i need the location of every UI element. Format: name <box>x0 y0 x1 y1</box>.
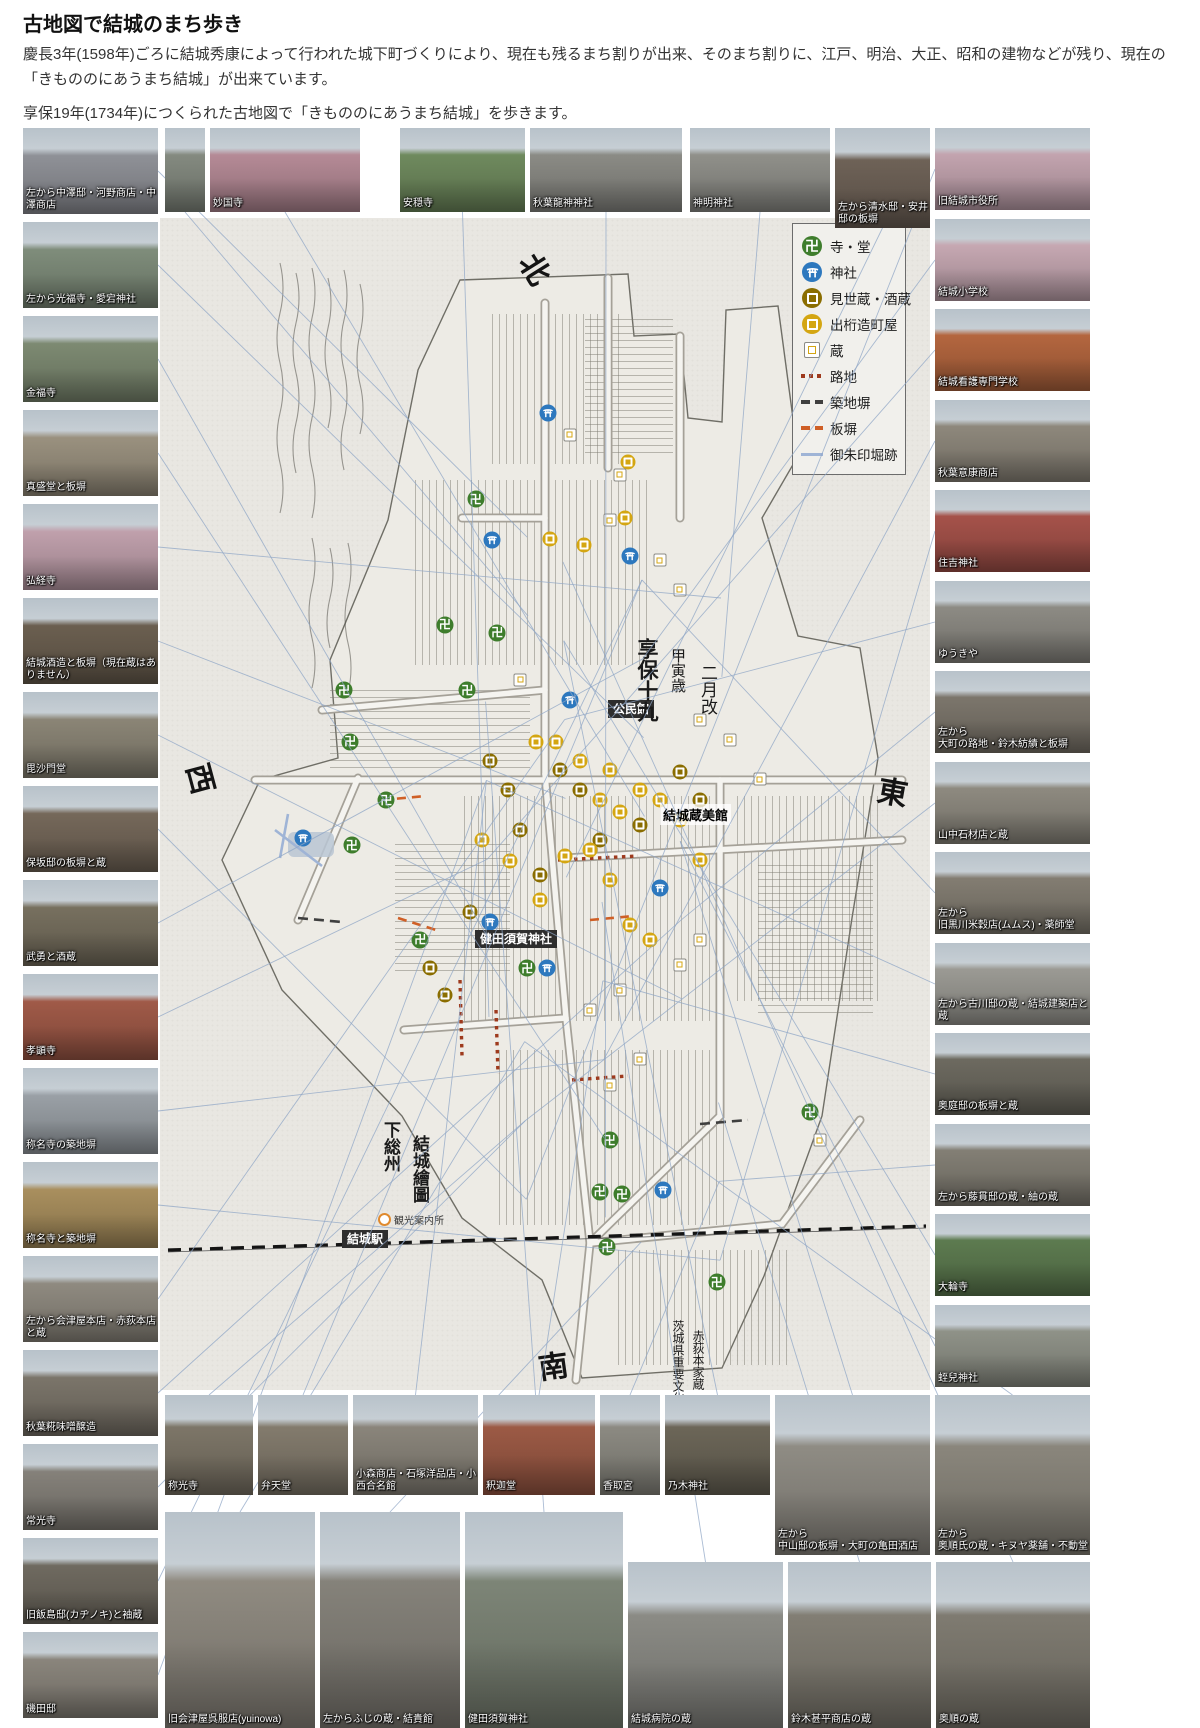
photo-thumbnail: 毘沙門堂 <box>23 692 158 778</box>
photo-caption: 結城病院の蔵 <box>631 1714 781 1726</box>
misegura-marker <box>672 765 687 780</box>
degeta-marker <box>602 873 617 888</box>
photo-thumbnail: 妙国寺 <box>210 128 360 212</box>
misegura-marker <box>513 822 528 837</box>
legend-label: 出桁造町屋 <box>830 314 898 334</box>
kura-marker <box>603 514 616 527</box>
photo-caption: 住吉神社 <box>938 558 1088 570</box>
photo-caption: 武勇と酒蔵 <box>26 952 156 964</box>
misegura-marker <box>501 782 516 797</box>
shrine-marker <box>621 547 638 564</box>
degeta-marker <box>528 734 543 749</box>
degeta-marker <box>692 853 707 868</box>
photo-caption: 香取宮 <box>603 1481 658 1493</box>
misegura-marker <box>533 868 548 883</box>
old-map-panel: 卍寺・堂神社見世蔵・酒蔵出桁造町屋蔵路地築地塀板塀御朱印堀跡 公民館 結城蔵美館… <box>160 218 930 1390</box>
misegura-marker <box>632 818 647 833</box>
photo-thumbnail: 磯田邸 <box>23 1632 158 1718</box>
photo-thumbnail: 大輪寺 <box>935 1214 1090 1296</box>
photo-thumbnail: 旧会津屋呉服店(yuinowa) <box>165 1512 315 1728</box>
misegura-marker <box>463 904 478 919</box>
photo-caption: 健田須賀神社 <box>468 1714 621 1726</box>
photo-thumbnail: 称名寺と築地塀 <box>23 1162 158 1248</box>
photo-thumbnail: 山中石材店と蔵 <box>935 762 1090 844</box>
photo-thumbnail: 左から藤貫邸の蔵・紬の蔵 <box>935 1124 1090 1206</box>
photo-caption: 小森商店・石塚洋品店・小西合名館 <box>356 1469 476 1493</box>
photo-caption: 秋葉龍神神社 <box>533 198 680 210</box>
photo-thumbnail: 左から清水邸・安井邸の板塀 <box>835 128 930 228</box>
goshuin-line <box>801 453 823 456</box>
photo-thumbnail: 蛭兒神社 <box>935 1305 1090 1387</box>
photo-thumbnail: 左から 大町の路地・鈴木紡績と板塀 <box>935 671 1090 753</box>
degeta-marker <box>642 932 657 947</box>
kura-marker <box>563 428 576 441</box>
photo-caption: 釈迦堂 <box>486 1481 593 1493</box>
temple-marker: 卍 <box>599 1239 616 1256</box>
photo-caption: 結城酒造と板塀（現在蔵はありません） <box>26 658 156 682</box>
legend-label: 寺・堂 <box>830 236 871 256</box>
photo-caption: 旧飯島邸(カヂノキ)と袖蔵 <box>26 1610 156 1622</box>
photo-thumbnail: 鈴木甚平商店の蔵 <box>788 1562 931 1728</box>
photo-caption: 真盛堂と板塀 <box>26 482 156 494</box>
degeta-marker <box>632 782 647 797</box>
degeta-marker <box>592 793 607 808</box>
photo-thumbnail: 左から 中山邸の板塀・大町の亀田酒店 <box>775 1395 930 1555</box>
photo-caption: 左から 中山邸の板塀・大町の亀田酒店 <box>778 1529 928 1553</box>
photo-thumbnail: 孝顕寺 <box>23 974 158 1060</box>
intro-paragraph-2: 享保19年(1734年)につくられた古地図で「きもののにあうまち結城」を歩きます… <box>23 102 1181 123</box>
roji-line <box>801 374 823 378</box>
legend-item: 卍寺・堂 <box>801 233 905 259</box>
temple-marker: 卍 <box>601 1132 618 1149</box>
kura-marker <box>723 733 736 746</box>
photo-thumbnail: 弘経寺 <box>23 504 158 590</box>
photo-caption: 称名寺の築地塀 <box>26 1140 156 1152</box>
photo-thumbnail: 真盛堂と板塀 <box>23 410 158 496</box>
photo-caption: 奥順の蔵 <box>939 1714 1088 1726</box>
kura-marker <box>653 554 666 567</box>
photo-caption: 左からふじの蔵・結貴館 <box>323 1714 458 1726</box>
photo-caption: 旧会津屋呉服店(yuinowa) <box>168 1714 313 1726</box>
photo-thumbnail: 秋葉糀味噌醸造 <box>23 1350 158 1436</box>
photo-thumbnail: 保坂邸の板塀と蔵 <box>23 786 158 872</box>
photo-caption: 神明神社 <box>693 198 828 210</box>
degeta-marker <box>576 537 591 552</box>
photo-thumbnail: 弁天堂 <box>258 1395 348 1495</box>
temple-marker: 卍 <box>436 616 453 633</box>
photo-caption: 結城小学校 <box>938 287 1088 299</box>
photo-thumbnail: 左からふじの蔵・結貴館 <box>320 1512 460 1728</box>
photo-thumbnail: 左から光福寺・愛宕神社 <box>23 222 158 308</box>
misegura-marker <box>572 782 587 797</box>
photo-caption: 山中石材店と蔵 <box>938 830 1088 842</box>
photo-caption: 称光寺 <box>168 1481 251 1493</box>
flyer-page: 古地図で結城のまち歩き 慶長3年(1598年)ごろに結城秀康によって行われた城下… <box>0 0 1200 1728</box>
compass-south: 南 <box>535 1340 571 1388</box>
photo-thumbnail: 健田須賀神社 <box>465 1512 623 1728</box>
degeta-marker <box>558 848 573 863</box>
photo-thumbnail: 左から会津屋本店・赤荻本店と蔵 <box>23 1256 158 1342</box>
shrine-marker <box>651 880 668 897</box>
kura-marker <box>613 468 626 481</box>
photo-caption: 鈴木甚平商店の蔵 <box>791 1714 929 1726</box>
photo-caption: 左から 旧黒川米穀店(ムムス)・薬師堂 <box>938 908 1088 932</box>
photo-thumbnail: 乃木神社 <box>665 1395 770 1495</box>
photo-caption: 大輪寺 <box>938 1282 1088 1294</box>
temple-marker: 卍 <box>342 733 359 750</box>
photo-caption: 金福寺 <box>26 388 156 400</box>
legend-item: 御朱印堀跡 <box>801 441 905 467</box>
shrine-marker <box>540 404 557 421</box>
photo-thumbnail: 称名寺の築地塀 <box>23 1068 158 1154</box>
photo-caption: 左から中澤邸・河野商店・中澤商店 <box>26 188 156 212</box>
photo-thumbnail: 秋葉意康商店 <box>935 400 1090 482</box>
photo-caption: 左から光福寺・愛宕神社 <box>26 294 156 306</box>
degeta-marker <box>533 893 548 908</box>
legend-item: 見世蔵・酒蔵 <box>801 285 905 311</box>
kura-marker <box>673 958 686 971</box>
map-label-kendasuga-shrine: 健田須賀神社 <box>475 930 557 948</box>
shrine-marker <box>539 960 556 977</box>
temple-marker: 卍 <box>489 624 506 641</box>
temple-marker: 卍 <box>412 931 429 948</box>
photo-thumbnail: 旧飯島邸(カヂノキ)と袖蔵 <box>23 1538 158 1624</box>
photo-caption: 孝顕寺 <box>26 1046 156 1058</box>
misegura-marker <box>437 988 452 1003</box>
photo-thumbnail: 金福寺 <box>23 316 158 402</box>
legend-label: 板塀 <box>830 418 857 438</box>
kura-icon <box>801 342 823 358</box>
kura-marker <box>583 1004 596 1017</box>
photo-caption: 結城看護専門学校 <box>938 377 1088 389</box>
photo-thumbnail: ゆうきや <box>935 581 1090 663</box>
photo-caption: 奥庭邸の板塀と蔵 <box>938 1101 1088 1113</box>
legend-item: 蔵 <box>801 337 905 363</box>
photo-thumbnail: 左から 旧黒川米穀店(ムムス)・薬師堂 <box>935 852 1090 934</box>
photo-thumbnail: 結城小学校 <box>935 219 1090 301</box>
photo-thumbnail: 称光寺 <box>165 1395 253 1495</box>
degeta-marker <box>474 833 489 848</box>
photo-caption: 左から清水邸・安井邸の板塀 <box>838 202 928 226</box>
photo-thumbnail: 神明神社 <box>690 128 830 212</box>
temple-marker: 卍 <box>708 1274 725 1291</box>
kura-marker <box>693 933 706 946</box>
photo-caption: 保坂邸の板塀と蔵 <box>26 858 156 870</box>
degeta-marker <box>618 511 633 526</box>
photo-caption: 左から会津屋本店・赤荻本店と蔵 <box>26 1316 156 1340</box>
photo-thumbnail: 結城看護専門学校 <box>935 309 1090 391</box>
temple-marker: 卍 <box>801 1104 818 1121</box>
misegura-marker <box>423 961 438 976</box>
photo-caption: 左から 大町の路地・鈴木紡績と板塀 <box>938 727 1088 751</box>
photo-thumbnail: 安穏寺 <box>400 128 525 212</box>
photo-caption: 常光寺 <box>26 1516 156 1528</box>
legend-label: 御朱印堀跡 <box>830 444 898 464</box>
photo-thumbnail: 左から 奥順氏の蔵・キヌヤ薬舗・不動堂 <box>935 1395 1090 1555</box>
map-label-tourist-info: 観光案内所 <box>378 1212 444 1227</box>
temple-marker: 卍 <box>343 837 360 854</box>
map-era-inscription: 享保十九 甲寅歳 二月改 <box>632 638 720 722</box>
photo-thumbnail: 奥庭邸の板塀と蔵 <box>935 1033 1090 1115</box>
photo-thumbnail: 常光寺 <box>23 1444 158 1530</box>
degeta-marker <box>572 753 587 768</box>
photo-caption: 左から古川邸の蔵・結城建築店と蔵 <box>938 999 1088 1023</box>
misegura-icon <box>801 288 823 308</box>
photo-thumbnail: 奥順の蔵 <box>936 1562 1090 1728</box>
temple-marker: 卍 <box>591 1183 608 1200</box>
photo-thumbnail: 香取宮 <box>600 1395 660 1495</box>
temple-icon: 卍 <box>801 236 823 256</box>
tourist-info-icon <box>378 1213 391 1226</box>
shrine-marker <box>561 691 578 708</box>
page-title: 古地図で結城のまち歩き <box>23 8 243 37</box>
legend-item: 路地 <box>801 363 905 389</box>
degeta-marker <box>542 532 557 547</box>
legend-item: 築地塀 <box>801 389 905 415</box>
degeta-marker <box>621 454 636 469</box>
kura-marker <box>813 1134 826 1147</box>
photo-caption: 旧結城市役所 <box>938 196 1088 208</box>
degeta-marker <box>548 734 563 749</box>
legend-item: 出桁造町屋 <box>801 311 905 337</box>
photo-thumbnail: 左から古川邸の蔵・結城建築店と蔵 <box>935 943 1090 1025</box>
kura-marker <box>613 984 626 997</box>
tsuijibei-line <box>801 400 823 404</box>
photo-thumbnail: 結城酒造と板塀（現在蔵はありません） <box>23 598 158 684</box>
map-label-kurabikan: 結城蔵美館 <box>660 804 731 825</box>
temple-marker: 卍 <box>519 960 536 977</box>
kura-marker <box>673 583 686 596</box>
photo-caption: 秋葉糀味噌醸造 <box>26 1422 156 1434</box>
misegura-marker <box>552 763 567 778</box>
photo-caption: 妙国寺 <box>213 198 358 210</box>
shrine-marker <box>483 532 500 549</box>
intro-paragraph: 慶長3年(1598年)ごろに結城秀康によって行われた城下町づくりにより、現在も残… <box>23 42 1181 92</box>
shrine-marker <box>295 829 312 846</box>
degeta-marker <box>503 854 518 869</box>
photo-caption: 称名寺と築地塀 <box>26 1234 156 1246</box>
degeta-marker <box>622 917 637 932</box>
photo-thumbnail: 武勇と酒蔵 <box>23 880 158 966</box>
photo-thumbnail: 左から中澤邸・河野商店・中澤商店 <box>23 128 158 214</box>
kura-marker <box>514 673 527 686</box>
photo-thumbnail: 住吉神社 <box>935 490 1090 572</box>
map-title-inscription: 下総州 結城繪圖 <box>378 1121 432 1203</box>
photo-caption: 弘経寺 <box>26 576 156 588</box>
photo-caption: 磯田邸 <box>26 1704 156 1716</box>
temple-marker: 卍 <box>614 1186 631 1203</box>
legend-label: 神社 <box>830 262 857 282</box>
shrine-marker <box>654 1181 671 1198</box>
temple-marker: 卍 <box>336 682 353 699</box>
temple-marker: 卍 <box>459 682 476 699</box>
map-label-yuki-station: 結城駅 <box>342 1230 388 1248</box>
kura-marker <box>603 1079 616 1092</box>
photo-thumbnail: 結城病院の蔵 <box>628 1562 783 1728</box>
legend-label: 築地塀 <box>830 392 871 412</box>
map-legend: 卍寺・堂神社見世蔵・酒蔵出桁造町屋蔵路地築地塀板塀御朱印堀跡 <box>792 223 906 475</box>
legend-label: 見世蔵・酒蔵 <box>830 288 911 308</box>
photo-thumbnail: 秋葉龍神神社 <box>530 128 682 212</box>
shrine-marker <box>482 914 499 931</box>
legend-item: 板塀 <box>801 415 905 441</box>
misegura-marker <box>483 753 498 768</box>
temple-marker: 卍 <box>467 491 484 508</box>
photo-caption: 乃木神社 <box>668 1481 768 1493</box>
photo-caption: 蛭兒神社 <box>938 1373 1088 1385</box>
degeta-marker <box>602 763 617 778</box>
photo-caption: 左から 奥順氏の蔵・キヌヤ薬舗・不動堂 <box>938 1529 1088 1553</box>
kura-marker <box>633 1053 646 1066</box>
shrine-icon <box>801 262 823 282</box>
photo-caption: 左から藤貫邸の蔵・紬の蔵 <box>938 1192 1088 1204</box>
photo-caption: ゆうきや <box>938 649 1088 661</box>
kura-marker <box>753 773 766 786</box>
photo-thumbnail: 旧結城市役所 <box>935 128 1090 210</box>
photo-thumbnail: 小森商店・石塚洋品店・小西合名館 <box>353 1395 478 1495</box>
temple-marker: 卍 <box>378 792 395 809</box>
legend-label: 蔵 <box>830 340 844 360</box>
photo-caption: 毘沙門堂 <box>26 764 156 776</box>
photo-caption: 安穏寺 <box>403 198 523 210</box>
legend-label: 路地 <box>830 366 857 386</box>
photo-thumbnail: 釈迦堂 <box>483 1395 595 1495</box>
degeta-icon <box>801 314 823 334</box>
photo-caption: 秋葉意康商店 <box>938 468 1088 480</box>
legend-item: 神社 <box>801 259 905 285</box>
degeta-marker <box>582 842 597 857</box>
degeta-marker <box>612 805 627 820</box>
photo-thumbnail <box>165 128 205 212</box>
itabei-line <box>801 426 823 430</box>
photo-caption: 弁天堂 <box>261 1481 346 1493</box>
